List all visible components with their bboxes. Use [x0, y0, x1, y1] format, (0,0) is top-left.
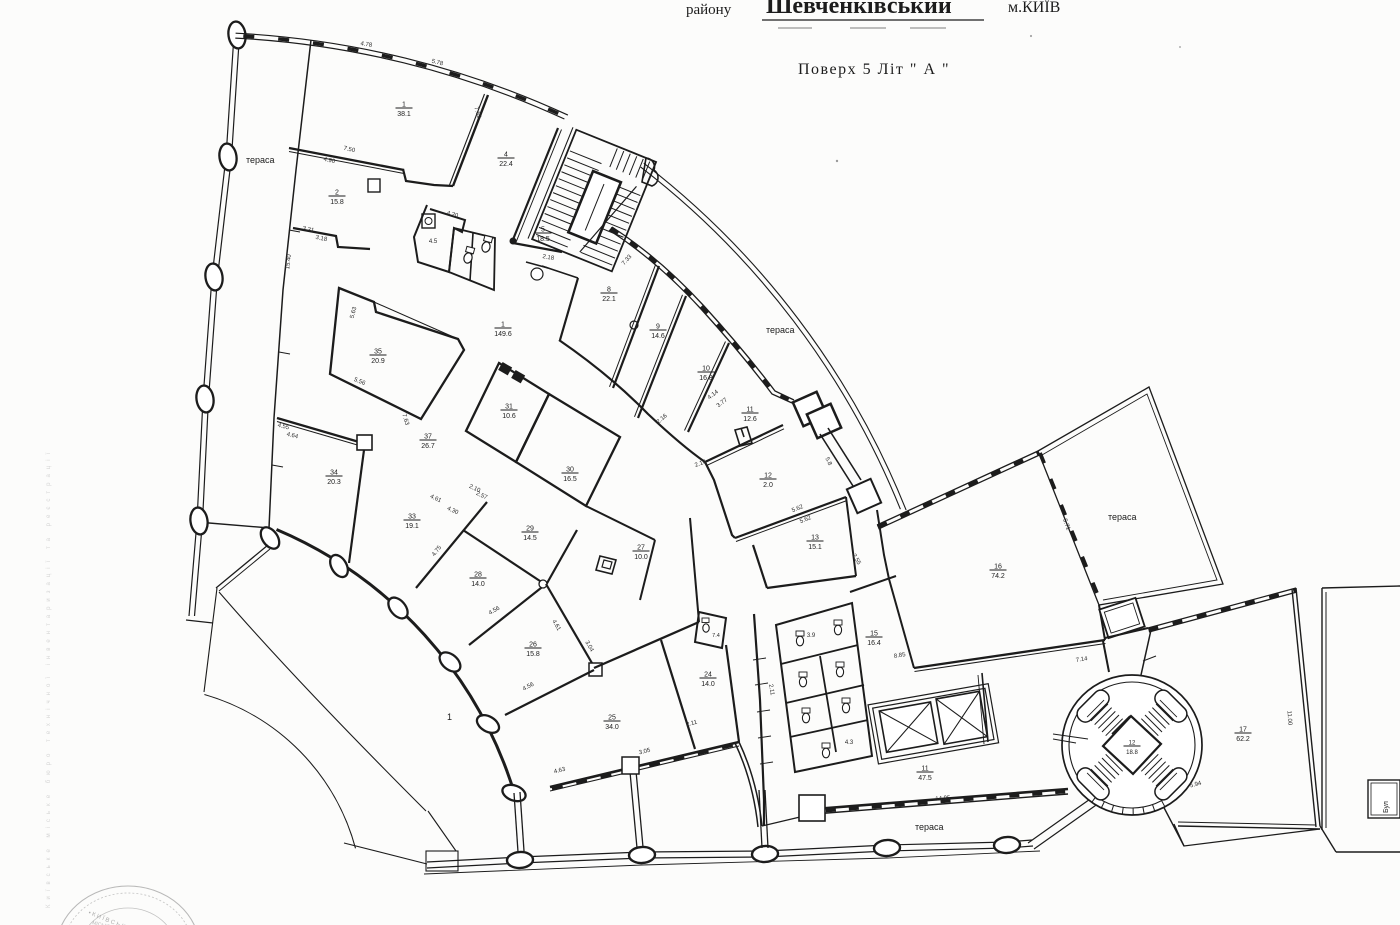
svg-text:20.9: 20.9 [371, 358, 385, 365]
svg-text:27: 27 [637, 545, 645, 552]
svg-text:16: 16 [994, 564, 1002, 571]
svg-text:тераса: тераса [246, 155, 275, 165]
svg-text:1: 1 [402, 102, 406, 109]
svg-text:31: 31 [505, 404, 513, 411]
svg-text:9: 9 [656, 324, 660, 331]
svg-text:Київське міське бюро технічної: Київське міське бюро технічної інвентари… [46, 448, 52, 908]
svg-text:15.1: 15.1 [808, 544, 822, 551]
svg-text:3.9: 3.9 [807, 633, 816, 639]
svg-text:62.2: 62.2 [1236, 736, 1250, 743]
svg-text:тераса: тераса [1108, 512, 1137, 522]
svg-text:1: 1 [501, 322, 505, 329]
svg-text:12: 12 [764, 473, 772, 480]
svg-text:15: 15 [870, 631, 878, 638]
svg-text:37: 37 [424, 434, 432, 441]
svg-text:11.00: 11.00 [1285, 710, 1292, 726]
svg-text:16.5: 16.5 [563, 476, 577, 483]
svg-text:26: 26 [529, 642, 537, 649]
svg-text:11: 11 [921, 766, 928, 773]
svg-text:2.0: 2.0 [763, 482, 773, 489]
svg-text:5: 5 [541, 227, 545, 234]
svg-text:15.8: 15.8 [526, 651, 540, 658]
svg-text:74.2: 74.2 [991, 573, 1005, 580]
svg-text:4: 4 [504, 152, 508, 159]
svg-text:13: 13 [811, 535, 819, 542]
svg-text:7.4: 7.4 [712, 633, 720, 639]
svg-text:14.5: 14.5 [523, 535, 537, 542]
svg-text:2: 2 [335, 190, 339, 197]
svg-text:17: 17 [1239, 727, 1247, 734]
svg-text:24: 24 [704, 672, 712, 679]
svg-text:34.0: 34.0 [605, 724, 619, 731]
svg-text:району: району [686, 2, 732, 18]
svg-text:22.4: 22.4 [499, 161, 513, 168]
svg-text:28: 28 [474, 572, 482, 579]
svg-text:11: 11 [746, 407, 753, 414]
svg-text:47.5: 47.5 [918, 775, 932, 782]
svg-text:Поверх 5 Літ " А ": Поверх 5 Літ " А " [798, 61, 950, 78]
svg-text:19.1: 19.1 [405, 523, 419, 530]
svg-text:4.5: 4.5 [429, 239, 438, 245]
svg-text:34: 34 [330, 470, 338, 477]
svg-text:12.6: 12.6 [743, 416, 757, 423]
svg-text:30: 30 [566, 467, 574, 474]
svg-text:18.8: 18.8 [1126, 750, 1138, 756]
svg-text:10.6: 10.6 [502, 413, 516, 420]
svg-text:10: 10 [702, 366, 710, 373]
svg-text:м.КИЇВ: м.КИЇВ [1008, 0, 1060, 16]
svg-text:22.1: 22.1 [602, 296, 616, 303]
svg-text:29: 29 [526, 526, 534, 533]
svg-text:1: 1 [447, 712, 452, 722]
svg-text:25: 25 [608, 715, 616, 722]
svg-text:4.3: 4.3 [845, 740, 854, 746]
svg-text:33: 33 [408, 514, 416, 521]
svg-text:20.3: 20.3 [327, 479, 341, 486]
svg-text:14.0: 14.0 [471, 581, 485, 588]
svg-text:16.4: 16.4 [867, 640, 881, 647]
svg-text:10.0: 10.0 [634, 554, 648, 561]
svg-text:149.6: 149.6 [494, 331, 512, 338]
svg-text:16.8: 16.8 [699, 375, 713, 382]
svg-text:38.1: 38.1 [397, 111, 411, 118]
svg-text:35: 35 [374, 349, 382, 356]
svg-text:8: 8 [607, 287, 611, 294]
svg-text:тераса: тераса [915, 822, 944, 832]
svg-text:Шевченківський: Шевченківський [766, 0, 952, 19]
svg-text:18.5: 18.5 [536, 236, 550, 243]
svg-text:15.8: 15.8 [330, 199, 344, 206]
svg-text:26.7: 26.7 [421, 443, 435, 450]
svg-text:тераса: тераса [766, 325, 795, 335]
svg-text:14.0: 14.0 [701, 681, 715, 688]
svg-text:Бул: Бул [1383, 801, 1390, 813]
svg-text:14.6: 14.6 [651, 333, 665, 340]
